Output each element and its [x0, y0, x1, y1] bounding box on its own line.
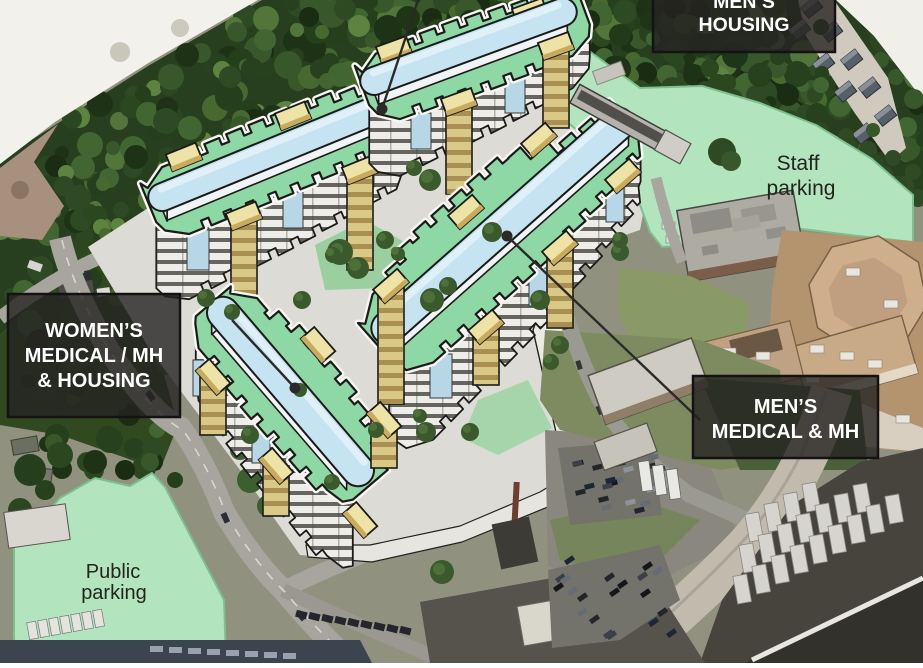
svg-text:Public: Public: [86, 561, 140, 583]
svg-text:HOUSING: HOUSING: [698, 14, 789, 36]
svg-text:parking: parking: [767, 177, 836, 200]
svg-text:MEN’S: MEN’S: [713, 0, 775, 13]
svg-text:Staff: Staff: [777, 152, 820, 175]
svg-text:MEDICAL & MH: MEDICAL & MH: [712, 421, 859, 443]
svg-text:WOMEN’S: WOMEN’S: [45, 320, 143, 342]
svg-text:MEN’S: MEN’S: [754, 396, 817, 418]
svg-text:parking: parking: [81, 582, 147, 604]
svg-text:& HOUSING: & HOUSING: [37, 370, 150, 392]
svg-text:MEDICAL / MH: MEDICAL / MH: [25, 345, 164, 367]
